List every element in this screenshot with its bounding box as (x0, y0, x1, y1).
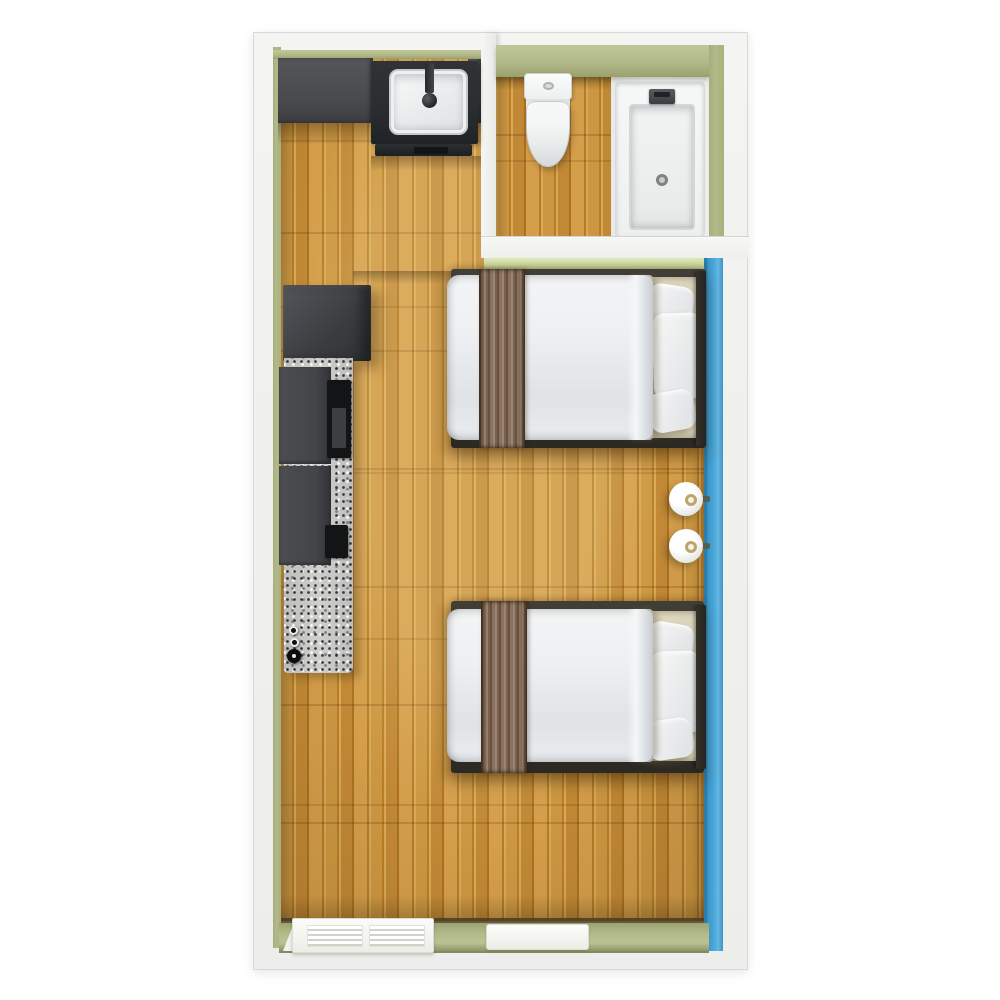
bed-2 (447, 597, 708, 777)
bed-2-runner (481, 601, 527, 773)
louvered-panel (292, 918, 434, 953)
louver-slats-right (369, 925, 425, 947)
bathroom-divider-wall (481, 33, 496, 238)
upper-cabinet (278, 58, 373, 123)
lamp-1-ring (685, 494, 697, 506)
bathroom-left-shadow (496, 77, 509, 237)
drawer-handle (414, 147, 448, 154)
bed-2-duvet (447, 609, 653, 762)
bed-2-duvet-edge (627, 609, 653, 762)
floor-plan (253, 32, 748, 970)
cooktop-surface (332, 408, 346, 448)
wall-lamp-2 (669, 529, 703, 563)
refrigerator (283, 285, 371, 361)
tub-drain (656, 174, 668, 186)
burner-dot (292, 654, 296, 658)
vanity-floor-shadow (371, 156, 481, 171)
bathroom-bottom-wall (481, 237, 749, 258)
counter-appliance (325, 525, 348, 558)
bed-2-headboard (696, 605, 706, 769)
bed-1-headboard (696, 271, 706, 446)
bed-1 (447, 265, 708, 450)
page: { "scene": { "type": "floor-plan-renderi… (0, 0, 1000, 1000)
stove-burner (287, 649, 301, 663)
tub-faucet-detail (654, 92, 670, 97)
toilet (524, 73, 574, 169)
bed-1-duvet (447, 275, 653, 440)
base-cabinet-1 (279, 367, 331, 464)
base-cabinet-2 (279, 466, 331, 565)
lamp-2-ring (685, 541, 697, 553)
bathroom-right-green (709, 45, 724, 258)
cooktop (327, 380, 351, 458)
bathtub (615, 81, 705, 237)
floor-mat (486, 924, 589, 950)
toilet-flush-button (543, 82, 554, 90)
louver-slats-left (307, 925, 363, 947)
sink-faucet-head (422, 93, 437, 108)
stove-knob-1 (289, 626, 298, 635)
bed-1-duvet-edge (627, 275, 653, 440)
stove-knob-2 (290, 638, 299, 647)
bed-1-runner (479, 269, 525, 448)
toilet-bowl (526, 101, 570, 167)
bathtub-basin (629, 104, 695, 230)
wall-lamp-1 (669, 482, 703, 516)
sink-faucet (425, 63, 434, 93)
